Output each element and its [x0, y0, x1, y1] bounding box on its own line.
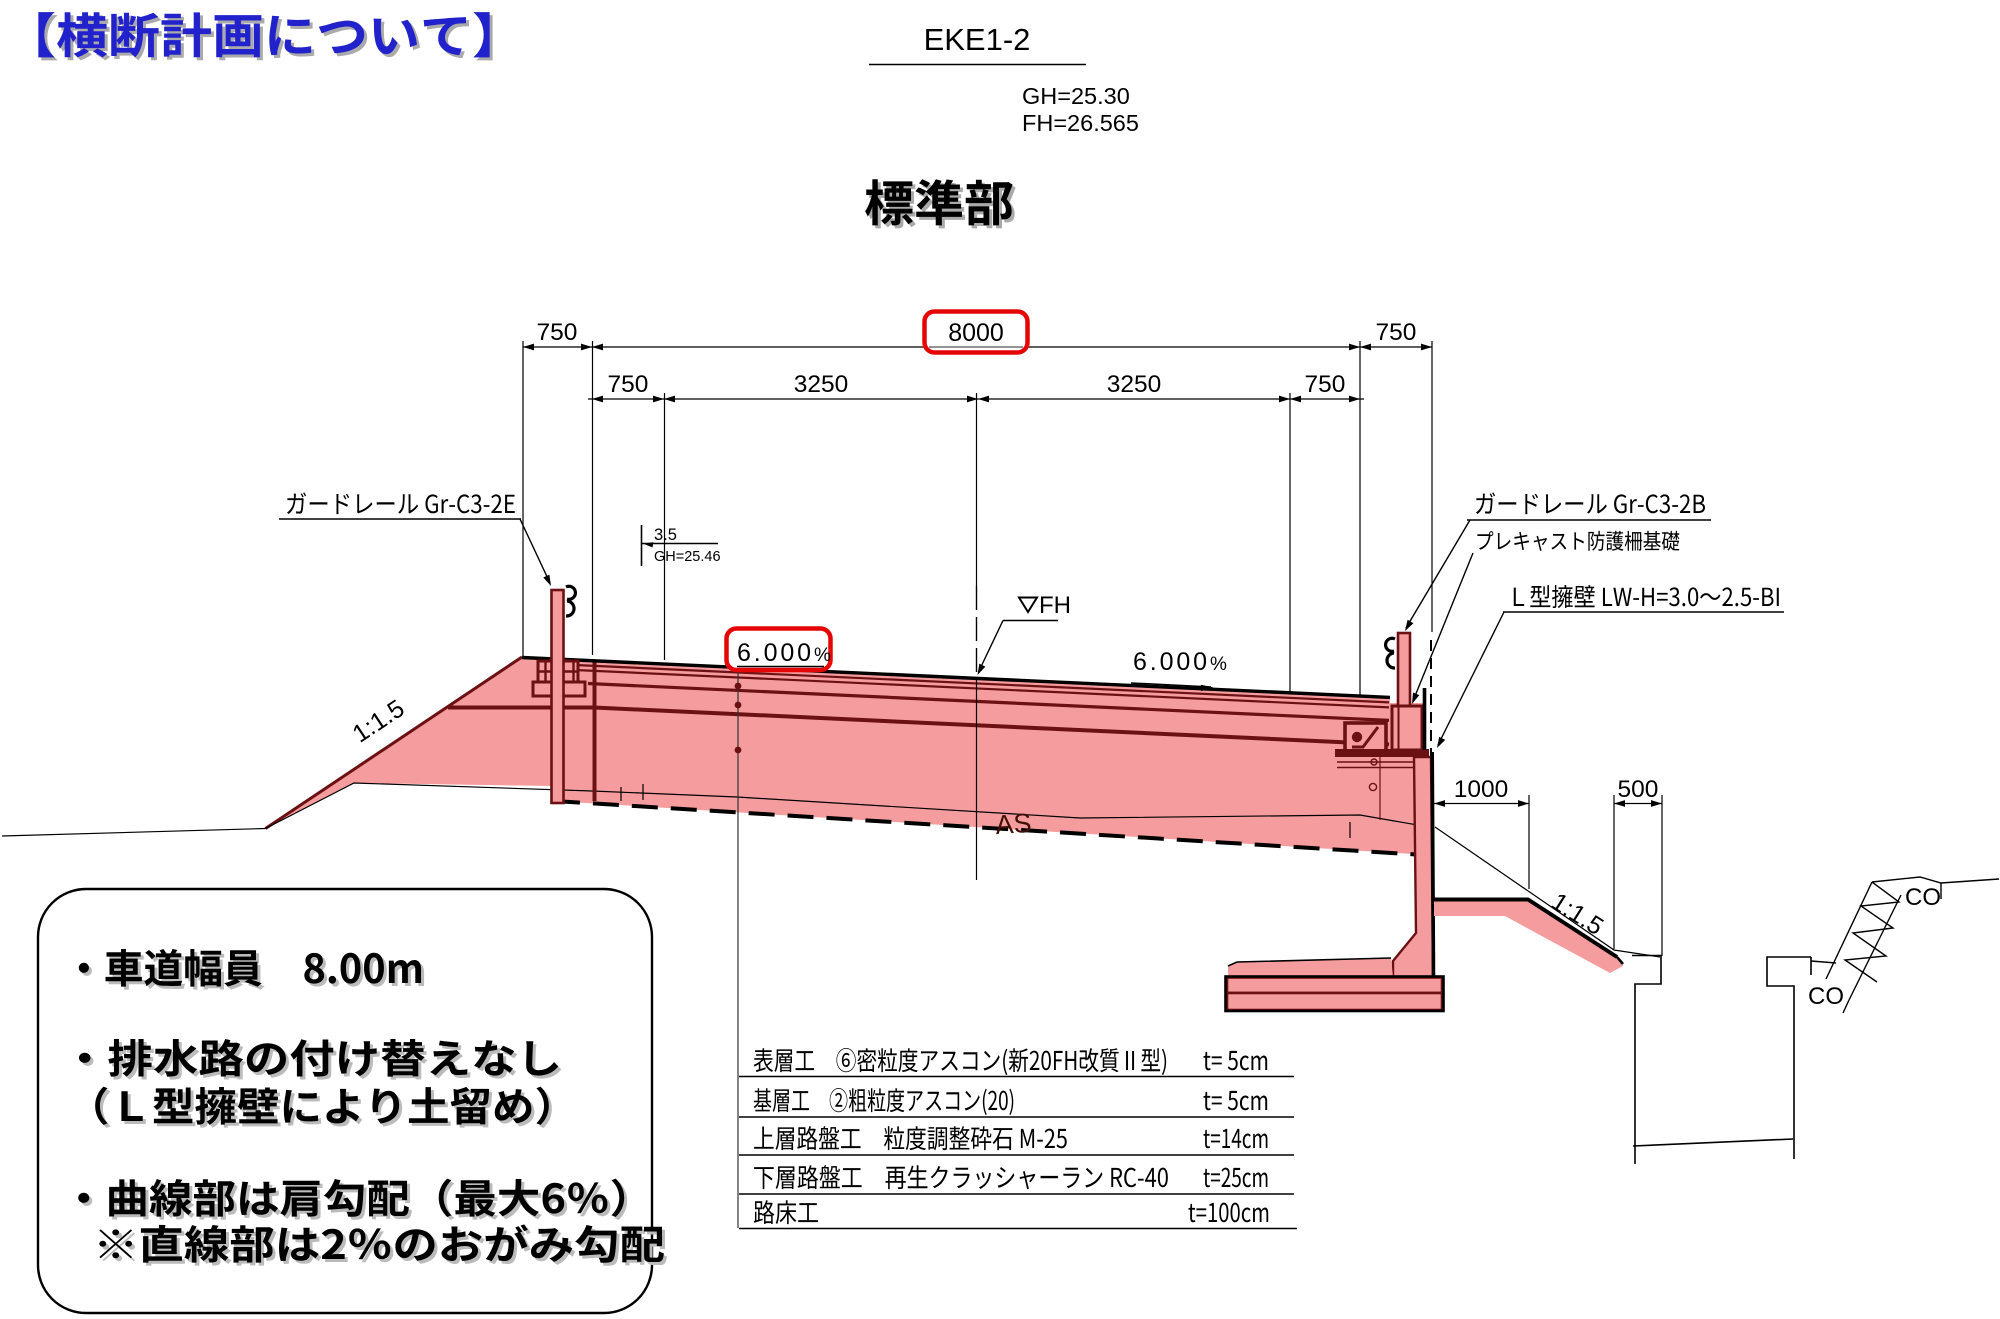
svg-text:3250: 3250 [794, 371, 849, 398]
svg-text:AS: AS [995, 808, 1033, 840]
svg-text:CO: CO [1905, 884, 1941, 911]
svg-text:750: 750 [1376, 319, 1417, 346]
svg-text:6.000: 6.000 [1133, 648, 1207, 676]
svg-text:750: 750 [608, 371, 649, 398]
svg-text:8000: 8000 [948, 319, 1004, 347]
svg-text:FH: FH [1039, 592, 1071, 619]
svg-text:EKE1-2: EKE1-2 [924, 22, 1031, 57]
svg-text:1000: 1000 [1454, 776, 1509, 803]
svg-text:500: 500 [1618, 776, 1659, 803]
svg-text:GH=25.30: GH=25.30 [1022, 83, 1130, 109]
svg-text:3.5: 3.5 [654, 526, 677, 544]
svg-text:GH=25.46: GH=25.46 [654, 549, 721, 565]
svg-text:750: 750 [537, 319, 578, 346]
svg-text:3250: 3250 [1107, 371, 1162, 398]
svg-text:FH=26.565: FH=26.565 [1022, 110, 1139, 136]
svg-text:%: % [814, 645, 831, 666]
svg-text:6.000: 6.000 [737, 639, 811, 667]
svg-text:750: 750 [1305, 371, 1346, 398]
svg-text:CO: CO [1808, 983, 1844, 1010]
svg-text:%: % [1210, 654, 1227, 675]
